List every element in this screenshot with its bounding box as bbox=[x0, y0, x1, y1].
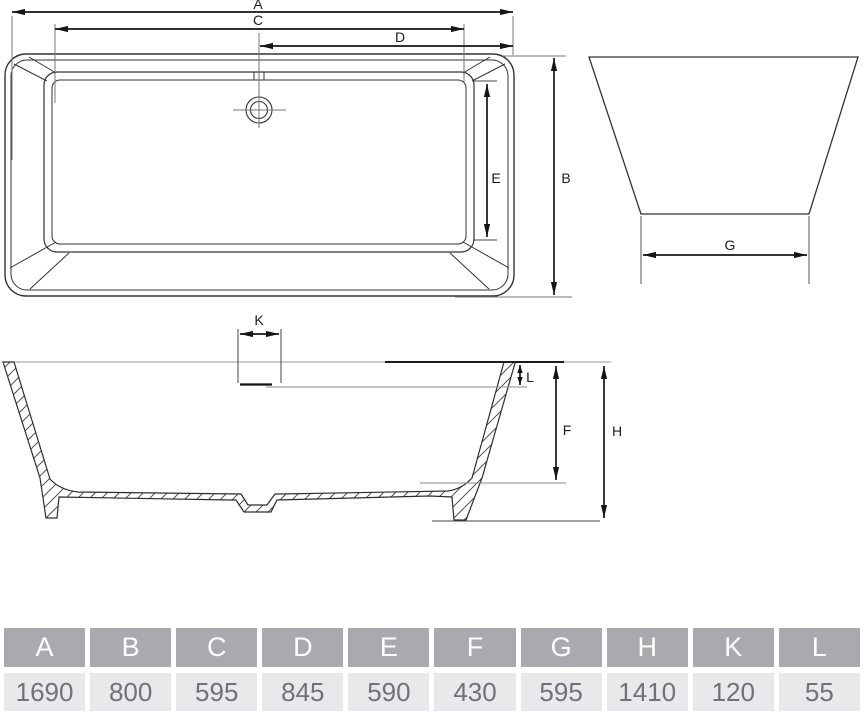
dim-L: L bbox=[520, 365, 534, 385]
table-value-cell: 845 bbox=[262, 673, 343, 711]
table-value-row: 1690 800 595 845 590 430 595 1410 120 55 bbox=[4, 673, 860, 711]
dim-F-label: F bbox=[563, 422, 572, 438]
table-header-cell: K bbox=[693, 628, 774, 667]
table-value-cell: 590 bbox=[348, 673, 429, 711]
table-value-cell: 595 bbox=[521, 673, 602, 711]
technical-drawing: A C D B E bbox=[0, 0, 864, 618]
end-view: G bbox=[589, 57, 858, 284]
end-profile bbox=[589, 57, 858, 214]
table-header-cell: L bbox=[779, 628, 860, 667]
table-value-cell: 800 bbox=[90, 673, 171, 711]
table-value-cell: 55 bbox=[779, 673, 860, 711]
table-header-cell: C bbox=[176, 628, 257, 667]
dim-H-label: H bbox=[612, 423, 622, 439]
table-value-cell: 595 bbox=[176, 673, 257, 711]
table-value-cell: 1410 bbox=[607, 673, 688, 711]
table-header-cell: H bbox=[607, 628, 688, 667]
table-value-cell: 430 bbox=[434, 673, 515, 711]
dim-E-label: E bbox=[491, 170, 500, 186]
table-header-row: A B C D E F G H K L bbox=[4, 628, 860, 667]
dimension-table: A B C D E F G H K L 1690 800 595 845 590… bbox=[4, 628, 860, 711]
dim-G-label: G bbox=[725, 237, 736, 253]
dim-D-label: D bbox=[395, 29, 405, 45]
dim-L-label: L bbox=[526, 369, 534, 385]
dim-K: K bbox=[238, 312, 527, 387]
dim-G: G bbox=[643, 237, 807, 255]
dim-E: E bbox=[473, 81, 501, 240]
table-header-cell: F bbox=[434, 628, 515, 667]
table-header-cell: D bbox=[262, 628, 343, 667]
table-value-cell: 120 bbox=[693, 673, 774, 711]
dim-A-label: A bbox=[253, 0, 263, 12]
table-value-cell: 1690 bbox=[4, 673, 85, 711]
table-header-cell: G bbox=[521, 628, 602, 667]
table-header-cell: A bbox=[4, 628, 85, 667]
dim-K-label: K bbox=[254, 312, 264, 328]
side-view: K L F H bbox=[3, 312, 622, 521]
tub-cross-section bbox=[3, 362, 515, 520]
dim-B-label: B bbox=[561, 170, 570, 186]
dim-C-label: C bbox=[253, 12, 263, 28]
dim-D: D bbox=[260, 29, 513, 46]
table-header-cell: B bbox=[90, 628, 171, 667]
bathtub-dimension-sheet: A C D B E bbox=[0, 0, 864, 720]
top-view bbox=[5, 33, 514, 296]
table-header-cell: E bbox=[348, 628, 429, 667]
